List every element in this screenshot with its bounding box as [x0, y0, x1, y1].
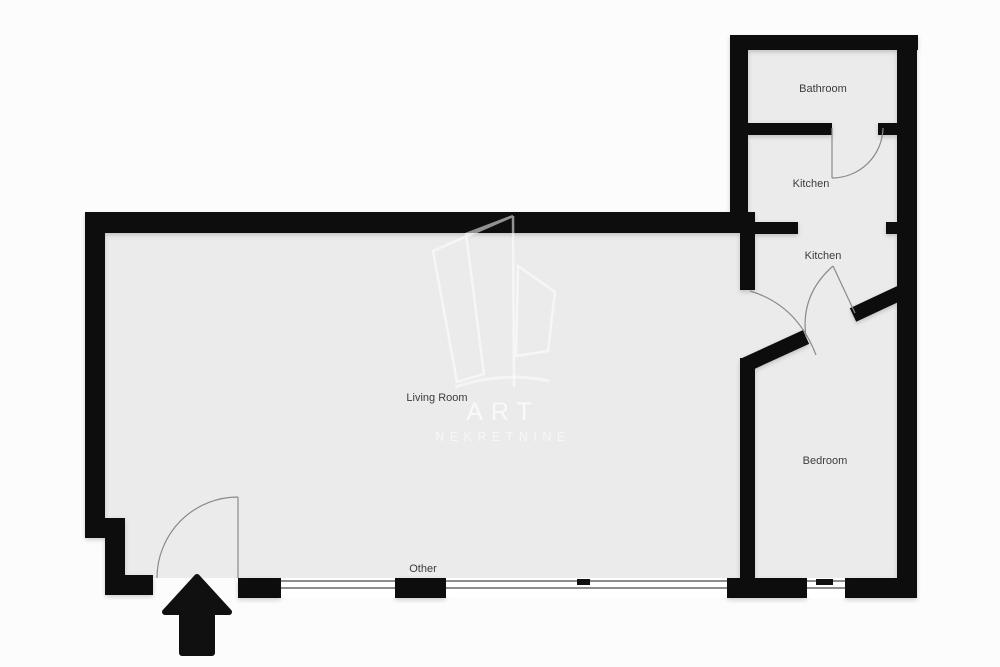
- left-wall: [85, 212, 105, 538]
- living-kitchen-wall: [740, 233, 755, 290]
- tower-top-wall: [730, 35, 918, 50]
- kitchen-upper-label: Kitchen: [793, 178, 830, 190]
- living-room-label: Living Room: [406, 392, 467, 404]
- kitchen-divider-wall: [740, 222, 798, 234]
- window-3-mullion: [816, 579, 833, 585]
- entrance-arrow-icon: [165, 577, 229, 653]
- tower-right-wall: [897, 35, 917, 598]
- bedroom-left-wall: [740, 358, 755, 578]
- bathroom-divider-stub: [878, 123, 898, 135]
- living-room-top-wall: [85, 212, 755, 233]
- bathroom-divider-wall: [748, 123, 832, 135]
- window-2-mullion: [577, 579, 590, 585]
- living-room-floor: [105, 233, 755, 578]
- watermark-text-nekretnine: NEKRETNINE: [435, 430, 571, 444]
- watermark-text-art: ART: [466, 398, 540, 426]
- bottom-wall-seg3: [727, 578, 807, 598]
- other-label: Other: [409, 563, 437, 575]
- bottom-wall-left-piece: [105, 575, 153, 595]
- kitchen-lower-label: Kitchen: [805, 250, 842, 262]
- bathroom-label: Bathroom: [799, 83, 847, 95]
- bottom-wall-seg1: [238, 578, 281, 598]
- tower-left-wall: [730, 35, 748, 215]
- bedroom-label: Bedroom: [803, 455, 848, 467]
- bottom-wall-seg2: [395, 578, 446, 598]
- floorplan-svg: ART NEKRETNINE Bathroom Kitchen Kitchen …: [0, 0, 1000, 667]
- floorplan-canvas: ART NEKRETNINE Bathroom Kitchen Kitchen …: [0, 0, 1000, 667]
- kitchen-divider-stub: [886, 222, 897, 234]
